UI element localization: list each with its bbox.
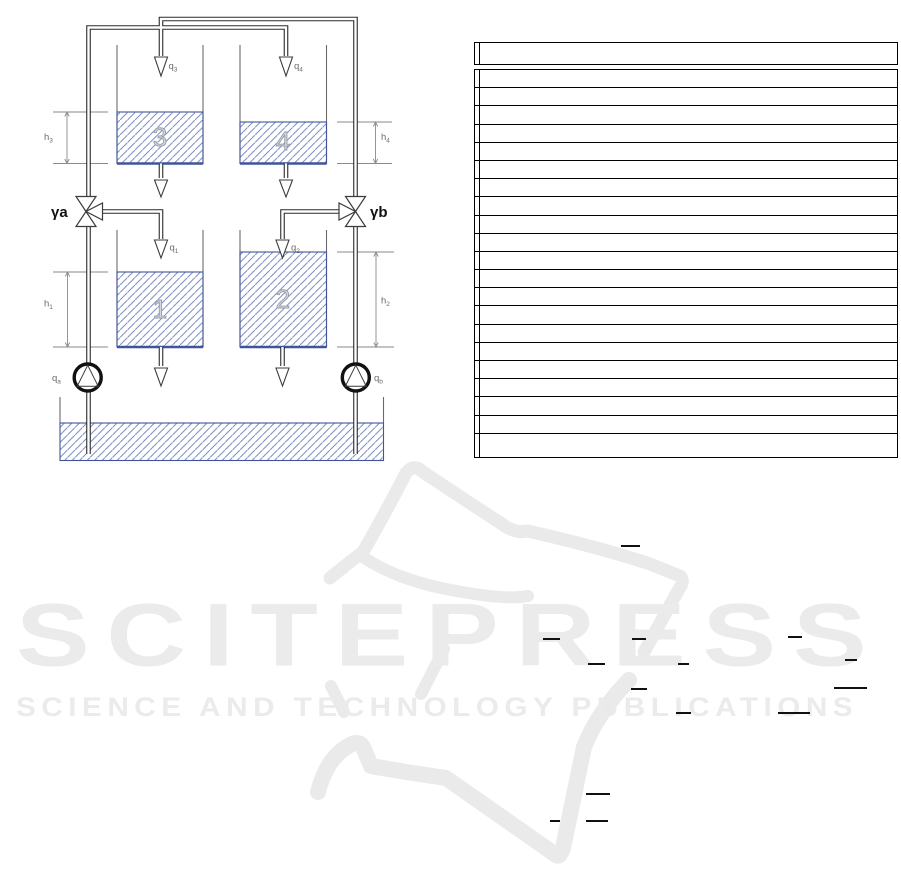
label-h2: h2 [381, 296, 390, 309]
watermark-logotype: SCITEPRESS [16, 591, 883, 680]
fraction-bar [788, 636, 802, 638]
water-volumes [60, 112, 384, 461]
fraction-bar [632, 638, 646, 640]
inflow-arrow-q1 [155, 240, 168, 258]
tank1-number: 1 [153, 294, 167, 324]
valve-a [76, 197, 103, 227]
table-row [475, 234, 897, 252]
tank-walls [60, 45, 384, 423]
fraction-bar [621, 545, 640, 547]
table-row [475, 216, 897, 234]
dimension-lines [53, 112, 394, 347]
table-row [475, 252, 897, 270]
table-rows [475, 70, 897, 457]
label-q3: q3 [169, 61, 178, 74]
fraction-bar [834, 687, 867, 689]
tank4-number: 4 [276, 126, 290, 156]
label-valve-b: γb [370, 204, 388, 221]
results-table [474, 42, 898, 458]
label-valve-a: γa [51, 204, 68, 221]
pipes [89, 19, 356, 454]
table-row [475, 179, 897, 197]
table-inner-rule [479, 70, 481, 457]
table-row [475, 379, 897, 397]
label-h1: h1 [44, 299, 53, 312]
outlet-arrow-tank3 [155, 180, 168, 197]
table-row [475, 143, 897, 161]
fraction-bar [778, 712, 810, 714]
fraction-bar [588, 663, 605, 665]
pump-a [74, 364, 101, 391]
label-h4: h4 [381, 132, 390, 145]
quadruple-tank-diagram: 3 4 1 2 q3 q4 q1 q2 qa qb h3 h4 h1 h2 γa… [0, 0, 460, 470]
fraction-bar [631, 688, 647, 690]
table-row [475, 88, 897, 106]
fraction-bar [550, 820, 560, 822]
labels: q3 q4 q1 q2 qa qb h3 h4 h1 h2 γa γb [44, 61, 390, 386]
label-q2: q2 [291, 243, 300, 256]
label-qa: qa [52, 373, 61, 386]
table-row [475, 125, 897, 143]
table-row [475, 343, 897, 361]
fraction-bar [676, 712, 691, 714]
inflow-arrow-q3 [155, 57, 168, 76]
valve-b [339, 197, 366, 227]
pump-b [342, 364, 369, 391]
label-qb: qb [374, 373, 383, 386]
table-row [475, 361, 897, 379]
table-inner-rule [479, 43, 481, 64]
label-h3: h3 [44, 132, 53, 145]
label-q4: q4 [294, 61, 303, 74]
table-header-row [474, 42, 898, 65]
table-row [475, 397, 897, 415]
watermark-subtitle: SCIENCE AND TECHNOLOGY PUBLICATIONS [16, 694, 858, 721]
label-q1: q1 [170, 243, 179, 256]
table-row [475, 325, 897, 343]
table-row [475, 106, 897, 124]
table-row [475, 434, 897, 457]
table-row [475, 288, 897, 306]
tank3-number: 3 [153, 122, 167, 152]
inflow-arrow-q4 [280, 57, 293, 76]
fraction-bar [678, 663, 689, 665]
table-row [475, 270, 897, 288]
table-row [475, 161, 897, 179]
table-body [474, 69, 898, 458]
tank2-number: 2 [276, 284, 290, 314]
outlet-arrow-tank1 [155, 368, 168, 386]
outlet-arrow-tank4 [280, 180, 293, 197]
fraction-bar [543, 638, 560, 640]
reservoir-water [60, 423, 384, 461]
fraction-bar [586, 820, 608, 822]
fraction-bar [845, 659, 857, 661]
table-row [475, 197, 897, 215]
outlet-arrow-tank2 [276, 368, 289, 386]
table-row [475, 306, 897, 324]
fraction-bar [586, 793, 610, 795]
table-row [475, 416, 897, 434]
table-row [475, 70, 897, 88]
